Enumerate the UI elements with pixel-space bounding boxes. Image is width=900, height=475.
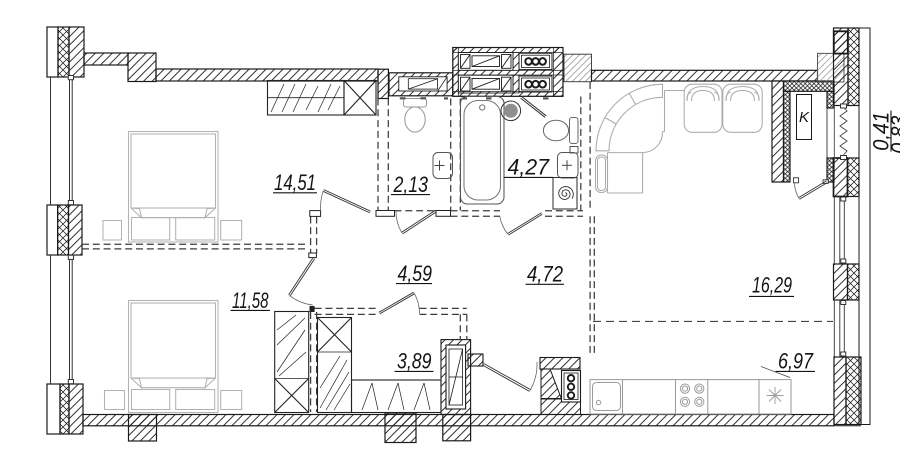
svg-text:0,83: 0,83 <box>887 115 900 153</box>
svg-text:K: K <box>799 109 810 126</box>
svg-text:14,51: 14,51 <box>274 170 316 195</box>
svg-text:2,13: 2,13 <box>393 172 429 197</box>
svg-text:4,59: 4,59 <box>398 261 433 286</box>
svg-text:4,27: 4,27 <box>508 155 551 180</box>
svg-text:6,97: 6,97 <box>778 349 814 374</box>
svg-text:4,72: 4,72 <box>527 262 563 287</box>
svg-text:11,58: 11,58 <box>232 288 269 313</box>
svg-text:3,89: 3,89 <box>397 349 432 374</box>
svg-text:16,29: 16,29 <box>752 273 792 298</box>
